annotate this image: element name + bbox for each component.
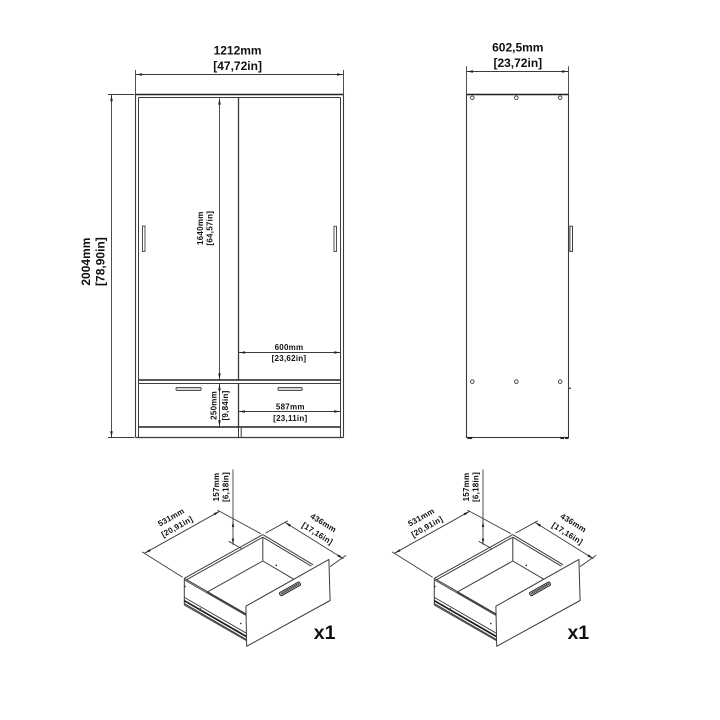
svg-text:[23,62in]: [23,62in]: [272, 354, 307, 363]
svg-text:587mm: 587mm: [276, 403, 305, 412]
svg-text:250mm: 250mm: [209, 391, 218, 420]
svg-text:1640mm: 1640mm: [196, 211, 205, 245]
svg-text:[47,72in]: [47,72in]: [213, 59, 262, 73]
svg-text:602,5mm: 602,5mm: [492, 41, 543, 55]
svg-text:[23,72in]: [23,72in]: [493, 56, 542, 70]
svg-text:2004mm: 2004mm: [79, 238, 93, 286]
svg-text:[6,18in]: [6,18in]: [222, 472, 231, 502]
svg-text:x1: x1: [314, 622, 336, 644]
svg-text:x1: x1: [567, 622, 589, 644]
svg-text:157mm: 157mm: [212, 473, 221, 502]
svg-text:157mm: 157mm: [462, 473, 471, 502]
svg-text:[9,84in]: [9,84in]: [221, 390, 230, 420]
svg-text:[6,18in]: [6,18in]: [472, 472, 481, 502]
svg-text:[23,11in]: [23,11in]: [273, 414, 307, 423]
svg-text:[78,90in]: [78,90in]: [93, 237, 107, 286]
svg-text:1212mm: 1212mm: [214, 44, 262, 58]
svg-text:600mm: 600mm: [275, 343, 304, 352]
svg-text:[64,57in]: [64,57in]: [206, 211, 215, 246]
